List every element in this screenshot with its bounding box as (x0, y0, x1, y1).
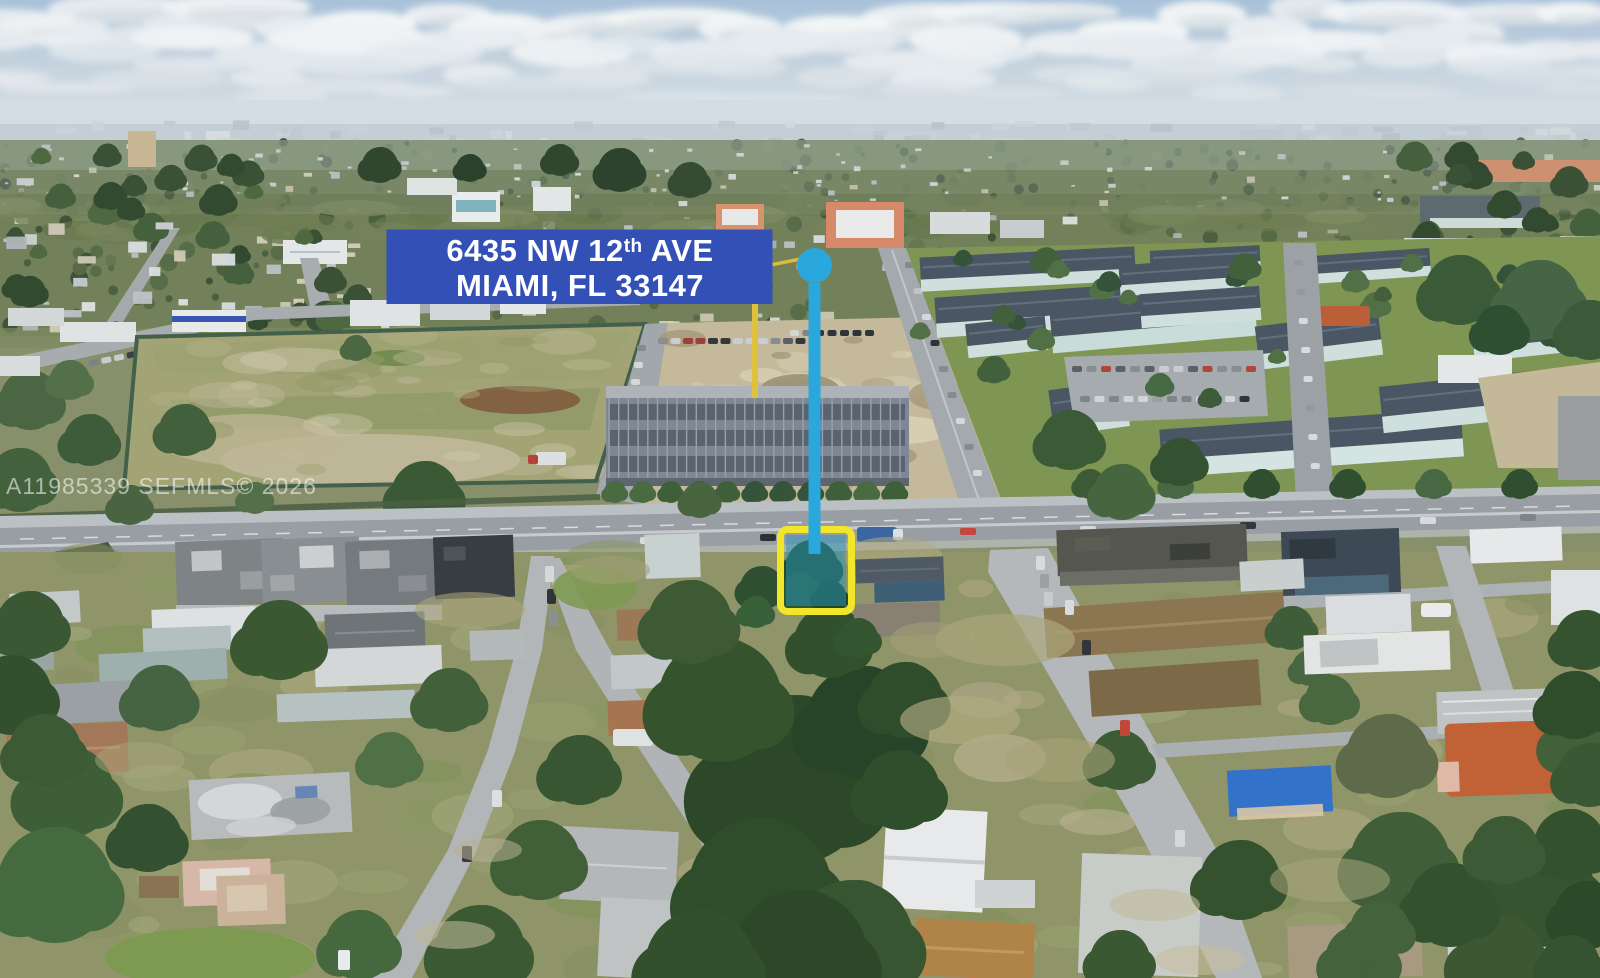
svg-text:MIAMI, FL 33147: MIAMI, FL 33147 (456, 268, 704, 303)
svg-text:6435 NW 12th AVE: 6435 NW 12th AVE (446, 233, 713, 268)
svg-text:A11985339 SEFMLS© 2026: A11985339 SEFMLS© 2026 (6, 473, 317, 499)
